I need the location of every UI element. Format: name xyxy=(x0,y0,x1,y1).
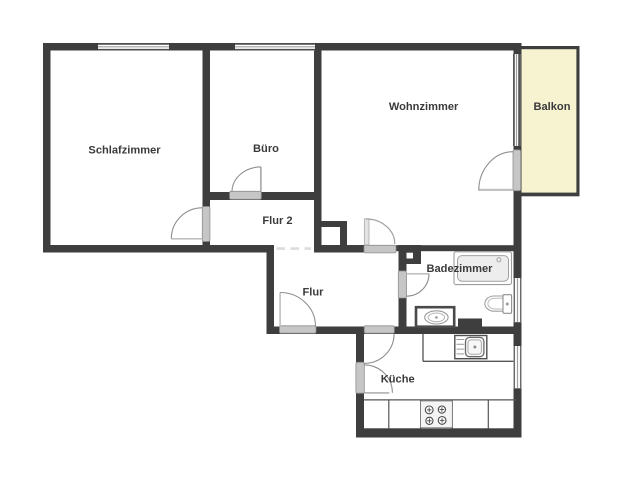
svg-text:Flur 2: Flur 2 xyxy=(262,215,292,227)
svg-text:Küche: Küche xyxy=(381,374,415,386)
svg-text:Wohnzimmer: Wohnzimmer xyxy=(389,101,459,113)
svg-text:Flur: Flur xyxy=(303,287,325,299)
svg-text:Büro: Büro xyxy=(253,143,279,155)
svg-text:Badezimmer: Badezimmer xyxy=(427,263,494,275)
svg-text:Balkon: Balkon xyxy=(534,101,571,113)
svg-text:Schlafzimmer: Schlafzimmer xyxy=(88,145,161,157)
